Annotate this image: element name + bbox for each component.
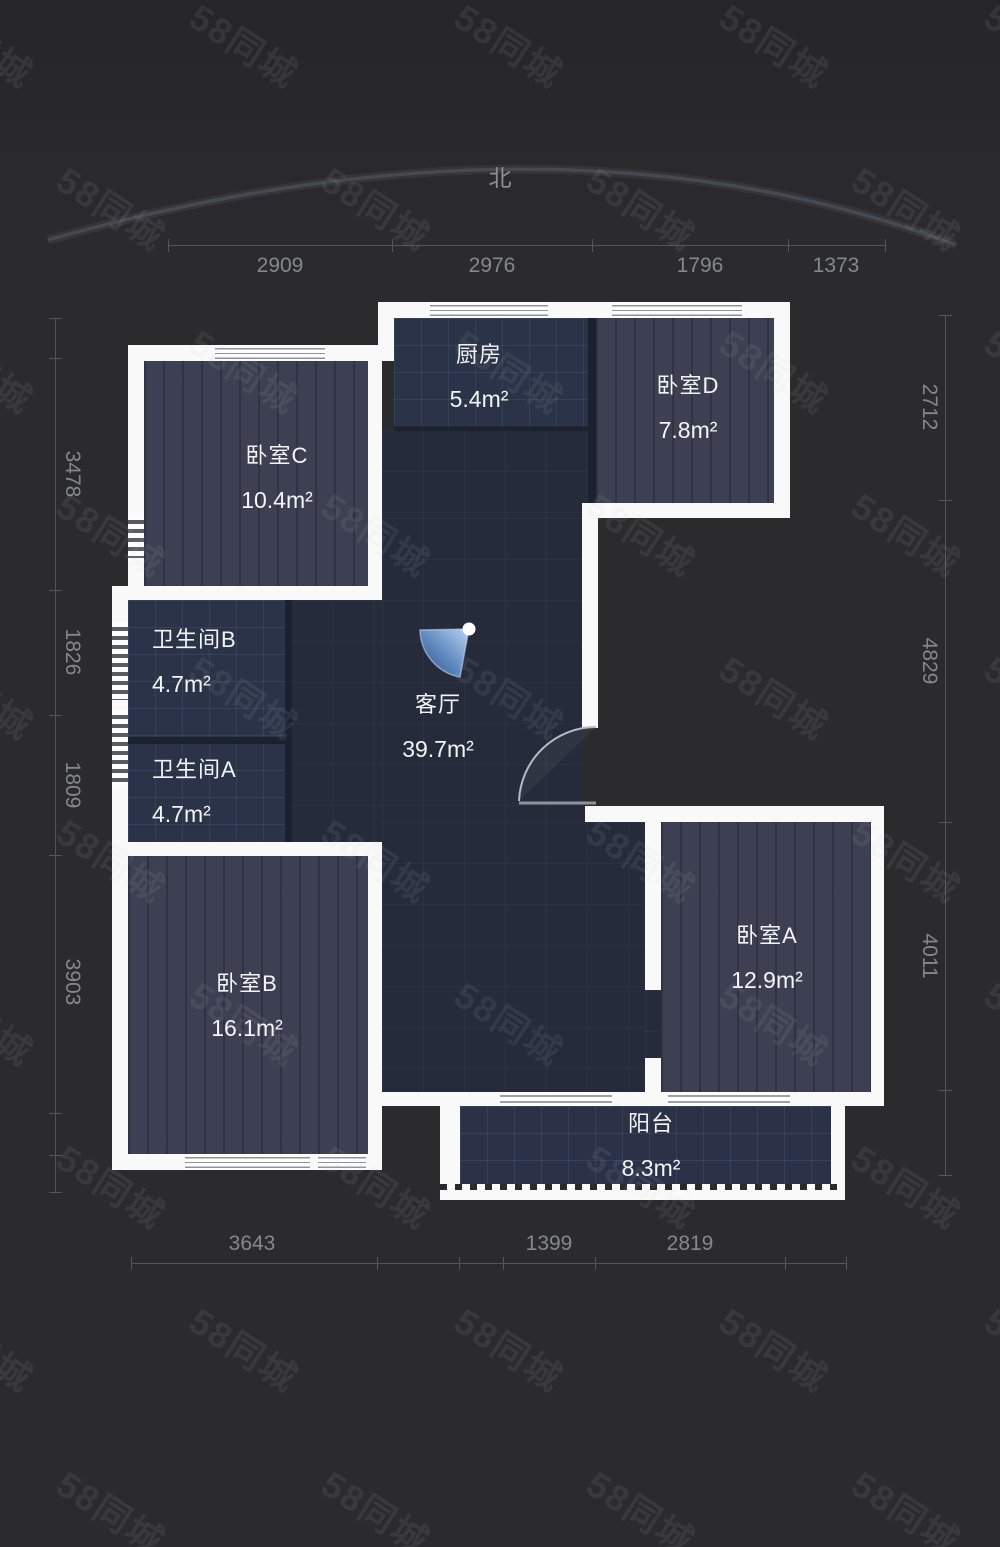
dimension-tick xyxy=(131,1257,132,1270)
dimension-label: 3903 xyxy=(60,959,84,1006)
room-area: 4.7m² xyxy=(152,792,237,836)
dimension-tick xyxy=(846,1257,847,1270)
dimension-label: 1373 xyxy=(813,254,860,278)
room-name: 卫生间A xyxy=(152,748,237,792)
viewpoint-fan-icon[interactable] xyxy=(420,623,476,678)
dimension-line-left xyxy=(55,318,56,1192)
room-label-bedroom-d: 卧室D 7.8m² xyxy=(657,364,720,452)
room-name: 卧室A xyxy=(731,914,803,958)
dimension-tick xyxy=(939,1175,952,1176)
dimension-label: 1796 xyxy=(677,254,724,278)
dimension-tick xyxy=(49,1113,62,1114)
dimension-tick xyxy=(49,715,62,716)
north-indicator: 北 xyxy=(489,159,512,193)
dimension-label: 1399 xyxy=(526,1232,573,1256)
room-area: 7.8m² xyxy=(657,408,720,452)
dimension-tick xyxy=(392,239,393,252)
room-area: 10.4m² xyxy=(241,478,313,522)
dimension-tick xyxy=(49,1155,62,1156)
room-label-bathroom-b: 卫生间B 4.7m² xyxy=(152,618,237,706)
dimension-line-top xyxy=(168,245,885,246)
room-label-bathroom-a: 卫生间A 4.7m² xyxy=(152,748,237,836)
dimension-tick xyxy=(459,1257,460,1270)
dimension-tick xyxy=(377,1257,378,1270)
dimension-tick xyxy=(49,1192,62,1193)
dimension-label: 4829 xyxy=(917,638,941,685)
dimension-tick xyxy=(49,318,62,319)
dimension-tick xyxy=(939,315,952,316)
entrance-door-arc xyxy=(519,727,596,801)
dimension-label: 2909 xyxy=(257,254,304,278)
dimension-line-right xyxy=(945,315,946,1175)
dimension-label: 2712 xyxy=(917,384,941,431)
dimension-tick xyxy=(49,590,62,591)
dimension-tick xyxy=(49,358,62,359)
room-name: 卧室C xyxy=(241,434,313,478)
dimension-line-bottom xyxy=(131,1263,846,1264)
dimension-tick xyxy=(49,855,62,856)
dimension-tick xyxy=(788,239,789,252)
dimension-tick xyxy=(168,239,169,252)
floorplan-screen: 北 厨房 5.4m² 卧室D 7.8m² 卧室C 10.4m² 卫生间B 4.7… xyxy=(0,0,1000,1547)
dimension-tick xyxy=(939,1090,952,1091)
dimension-tick xyxy=(592,239,593,252)
dimension-tick xyxy=(785,1257,786,1270)
room-label-kitchen: 厨房 5.4m² xyxy=(450,333,509,421)
room-name: 卧室B xyxy=(211,962,283,1006)
room-name: 客厅 xyxy=(402,683,474,727)
dimension-label: 3643 xyxy=(229,1232,276,1256)
room-area: 16.1m² xyxy=(211,1006,283,1050)
room-area: 39.7m² xyxy=(402,727,474,771)
room-label-bedroom-c: 卧室C 10.4m² xyxy=(241,434,313,522)
dimension-label: 3478 xyxy=(60,451,84,498)
dimension-label: 2819 xyxy=(667,1232,714,1256)
room-name: 厨房 xyxy=(450,333,509,377)
dimension-tick xyxy=(939,500,952,501)
room-label-living-room: 客厅 39.7m² xyxy=(402,683,474,771)
dimension-label: 1826 xyxy=(60,629,84,676)
dimension-tick xyxy=(939,822,952,823)
room-area: 8.3m² xyxy=(622,1146,681,1190)
plan-overlay xyxy=(0,0,1000,1547)
room-name: 卫生间B xyxy=(152,618,237,662)
dimension-tick xyxy=(503,1257,504,1270)
dimension-label: 1809 xyxy=(60,762,84,809)
room-area: 12.9m² xyxy=(731,958,803,1002)
room-name: 卧室D xyxy=(657,364,720,408)
room-label-bedroom-b: 卧室B 16.1m² xyxy=(211,962,283,1050)
room-area: 4.7m² xyxy=(152,662,237,706)
room-label-balcony: 阳台 8.3m² xyxy=(622,1102,681,1190)
room-area: 5.4m² xyxy=(450,377,509,421)
viewpoint-dot xyxy=(463,623,476,636)
room-label-bedroom-a: 卧室A 12.9m² xyxy=(731,914,803,1002)
dimension-label: 2976 xyxy=(469,254,516,278)
room-name: 阳台 xyxy=(622,1102,681,1146)
dimension-label: 4011 xyxy=(917,933,941,978)
dimension-tick xyxy=(885,239,886,252)
dimension-tick xyxy=(595,1257,596,1270)
